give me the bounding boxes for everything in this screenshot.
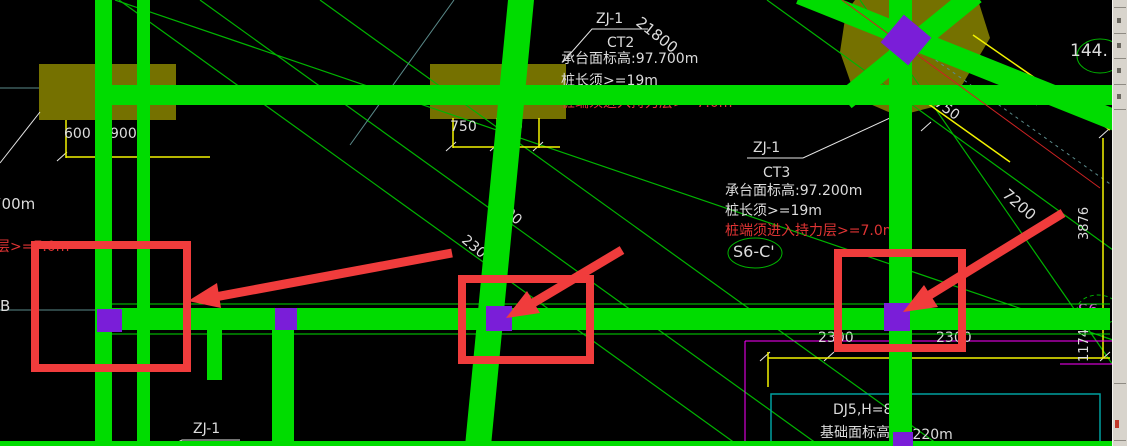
beam-diagonal-column xyxy=(465,0,534,446)
beam-top xyxy=(95,85,1113,105)
pile-square-4 xyxy=(884,303,910,331)
pile-square-2 xyxy=(275,308,297,330)
diagonal-beams-topright xyxy=(800,0,1127,125)
arrow-1-shaft xyxy=(215,253,452,297)
cad-drawing-viewport: ZJ-1 21800 CT2 承台面标高:97.700m 桩长须>=19m 桩端… xyxy=(0,0,1127,446)
pile-square-1 xyxy=(97,309,122,332)
side-strip-red-mark xyxy=(1115,420,1119,428)
column-stub-2 xyxy=(207,330,222,380)
beam-bottom-edge xyxy=(0,441,1113,446)
right-panel-edge-scrollbar[interactable] xyxy=(1112,0,1127,446)
pile-square-bottom xyxy=(893,432,913,446)
annotation-arrows xyxy=(188,213,1063,318)
column-line-left-2 xyxy=(137,0,150,446)
pile-square-3 xyxy=(486,306,512,331)
structure-layer xyxy=(0,0,1127,446)
grid-beams xyxy=(0,0,1113,446)
column-line-left-1 xyxy=(95,0,112,446)
